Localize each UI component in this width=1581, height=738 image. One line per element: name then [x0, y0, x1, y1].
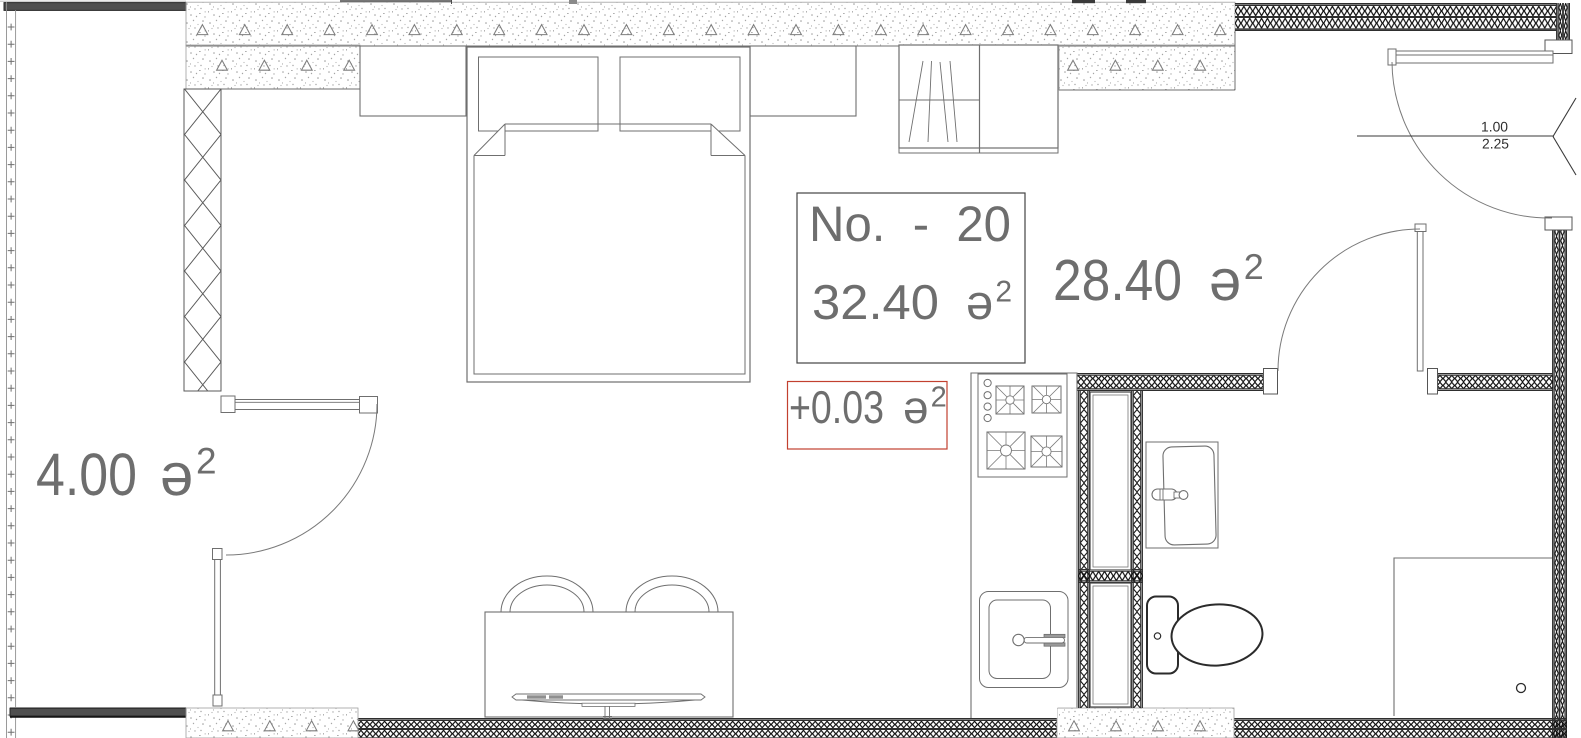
svg-text:4.00: 4.00 — [36, 441, 137, 508]
svg-text:ә: ә — [1209, 248, 1241, 313]
svg-text:2.25: 2.25 — [1482, 136, 1509, 152]
svg-text:2: 2 — [995, 275, 1012, 308]
svg-text:ә: ә — [966, 276, 993, 330]
svg-text:32.40: 32.40 — [812, 276, 939, 330]
svg-text:No. - 20: No. - 20 — [809, 196, 1011, 252]
svg-text:1.00: 1.00 — [1481, 119, 1508, 135]
svg-text:ә: ә — [160, 441, 193, 508]
svg-text:2: 2 — [196, 440, 217, 481]
svg-text:2: 2 — [931, 381, 947, 413]
svg-text:28.40: 28.40 — [1053, 248, 1182, 313]
svg-text:+0.03: +0.03 — [789, 381, 884, 433]
svg-text:ә: ә — [903, 381, 929, 433]
svg-text:2: 2 — [1244, 246, 1264, 287]
